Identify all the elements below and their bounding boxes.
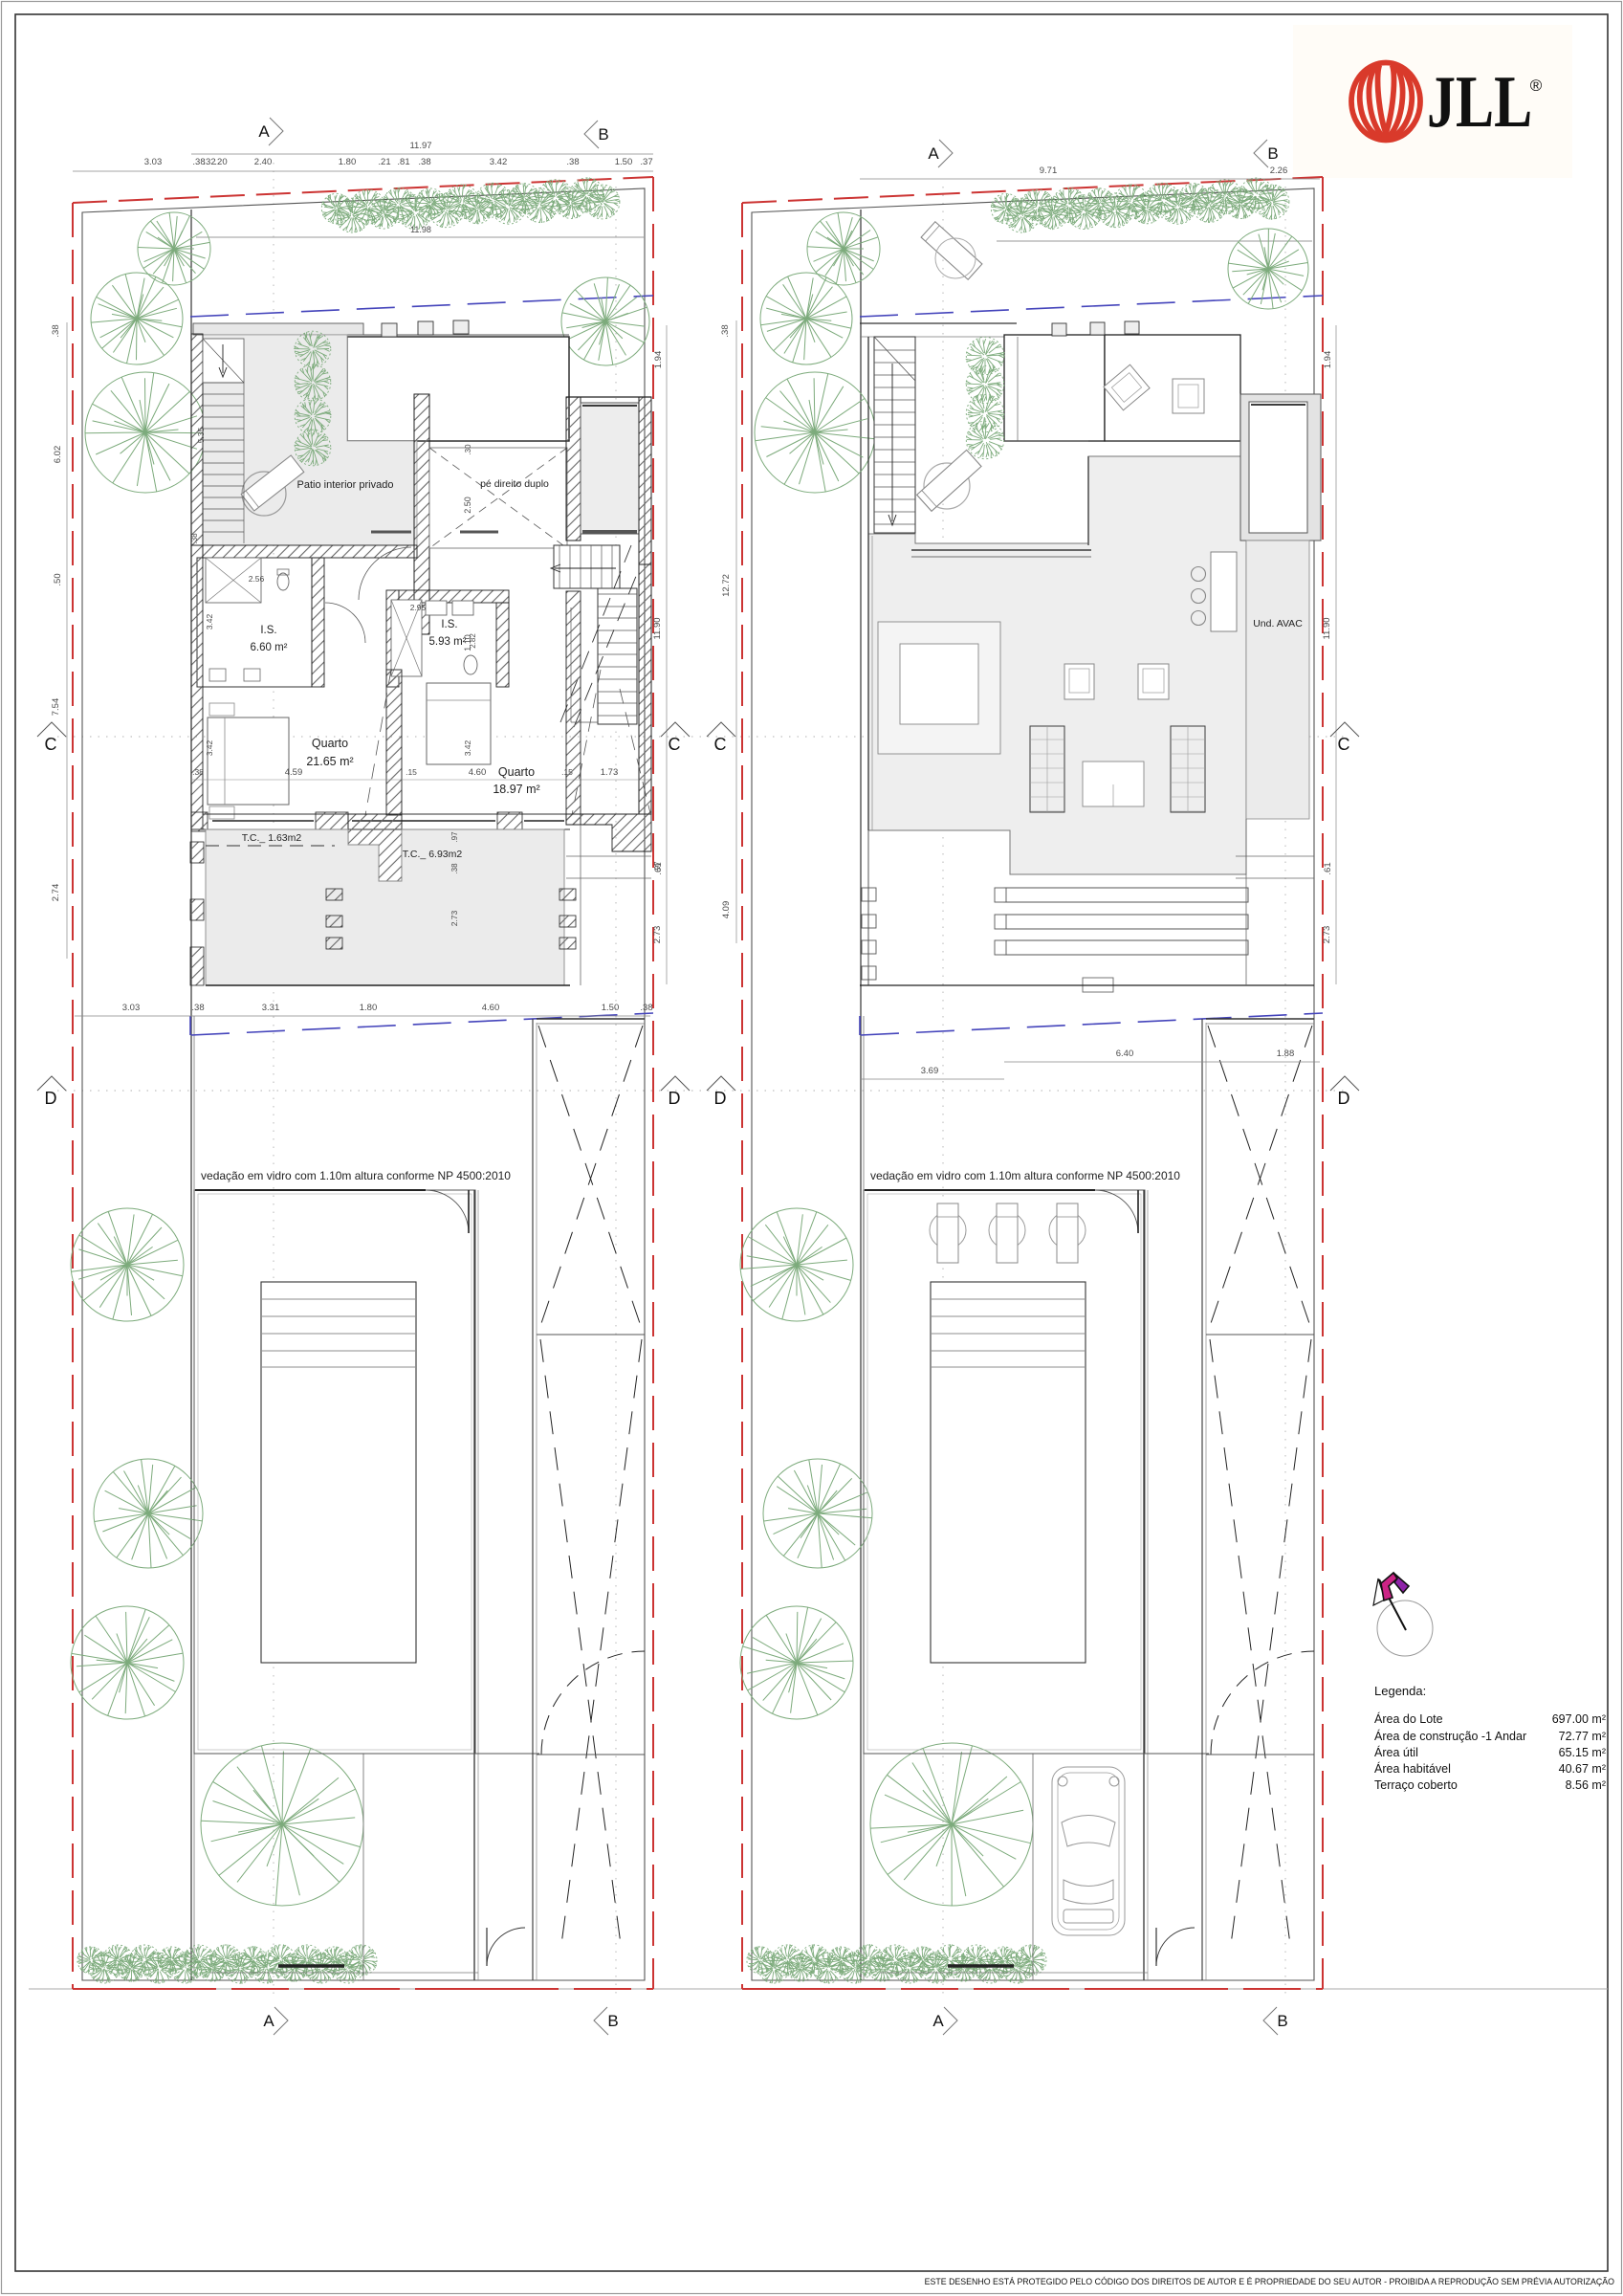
svg-text:.38: .38	[418, 157, 430, 167]
svg-text:11.90: 11.90	[652, 617, 663, 639]
svg-text:12.72: 12.72	[721, 574, 732, 597]
svg-text:Terraço coberto: Terraço coberto	[1374, 1778, 1458, 1792]
svg-text:A: A	[932, 2012, 944, 2030]
svg-text:40.67 m²: 40.67 m²	[1559, 1762, 1606, 1776]
svg-text:Área útil: Área útil	[1374, 1745, 1418, 1759]
svg-text:A: A	[258, 122, 270, 141]
svg-text:3.03: 3.03	[144, 157, 163, 167]
svg-text:.20: .20	[214, 157, 227, 167]
svg-text:4.60: 4.60	[482, 1003, 500, 1013]
svg-text:2.82: 2.82	[469, 633, 477, 649]
svg-text:D: D	[669, 1089, 681, 1108]
svg-text:1.88: 1.88	[1277, 1049, 1295, 1059]
svg-text:Und. AVAC: Und. AVAC	[1253, 618, 1303, 629]
svg-text:C: C	[1338, 735, 1350, 754]
svg-text:.97: .97	[653, 861, 662, 872]
svg-text:B: B	[607, 2012, 618, 2030]
svg-text:6.40: 6.40	[1116, 1049, 1134, 1059]
svg-text:Patio interior privado: Patio interior privado	[297, 479, 394, 491]
svg-text:1.50: 1.50	[615, 157, 633, 167]
svg-text:1.80: 1.80	[360, 1003, 378, 1013]
svg-text:C: C	[45, 735, 57, 754]
svg-text:697.00 m²: 697.00 m²	[1552, 1712, 1606, 1726]
svg-text:3.03: 3.03	[122, 1003, 141, 1013]
svg-text:.38: .38	[640, 1003, 652, 1013]
svg-text:4.59: 4.59	[285, 767, 303, 778]
svg-text:.30: .30	[464, 444, 472, 455]
svg-text:Área habitável: Área habitável	[1374, 1761, 1451, 1776]
svg-text:.50: .50	[53, 573, 63, 585]
svg-text:9.71: 9.71	[1040, 166, 1058, 176]
svg-text:2.40: 2.40	[254, 157, 273, 167]
svg-text:I.S.: I.S.	[260, 625, 276, 636]
svg-text:I.S.: I.S.	[441, 619, 457, 630]
svg-text:JLL: JLL	[1427, 60, 1532, 143]
svg-text:5.93 m²: 5.93 m²	[429, 636, 467, 648]
svg-text:A: A	[263, 2012, 274, 2030]
svg-text:Quarto: Quarto	[498, 765, 535, 779]
svg-text:21.65 m²: 21.65 m²	[306, 755, 353, 768]
svg-text:C: C	[714, 735, 727, 754]
svg-text:4.60: 4.60	[469, 767, 487, 778]
svg-text:8.56 m²: 8.56 m²	[1566, 1778, 1606, 1792]
svg-text:2.73: 2.73	[652, 926, 663, 944]
svg-text:18.97 m²: 18.97 m²	[493, 783, 539, 796]
svg-text:B: B	[1277, 2012, 1287, 2030]
svg-text:2.56: 2.56	[249, 574, 265, 584]
svg-text:.38: .38	[51, 324, 61, 337]
svg-text:1.73: 1.73	[601, 767, 619, 778]
svg-text:3.42: 3.42	[490, 157, 508, 167]
svg-text:B: B	[1267, 144, 1278, 163]
svg-text:D: D	[45, 1089, 57, 1108]
svg-text:T.C._ 6.93m2: T.C._ 6.93m2	[403, 849, 463, 860]
svg-text:1.94: 1.94	[1323, 351, 1333, 369]
svg-text:C: C	[669, 735, 681, 754]
svg-text:D: D	[714, 1089, 727, 1108]
svg-text:2.74: 2.74	[51, 884, 61, 902]
svg-text:11.90: 11.90	[1322, 617, 1332, 639]
svg-text:7.54: 7.54	[51, 698, 61, 717]
svg-text:.38: .38	[191, 1003, 204, 1013]
svg-text:3.42: 3.42	[205, 613, 214, 629]
svg-text:4.09: 4.09	[721, 901, 732, 919]
svg-text:.97: .97	[450, 831, 459, 843]
svg-text:.15: .15	[406, 767, 417, 777]
svg-text:2.26: 2.26	[1270, 166, 1288, 176]
svg-text:.38: .38	[192, 767, 204, 777]
svg-text:vedação em vidro com 1.10m alt: vedação em vidro com 1.10m altura confor…	[870, 1169, 1180, 1182]
svg-text:6.02: 6.02	[53, 446, 63, 464]
svg-text:3.31: 3.31	[262, 1003, 280, 1013]
svg-text:pé direito duplo: pé direito duplo	[480, 478, 549, 490]
svg-text:72.77 m²: 72.77 m²	[1559, 1730, 1606, 1743]
svg-text:2.50: 2.50	[463, 497, 472, 514]
svg-text:2.73: 2.73	[1322, 926, 1332, 944]
svg-text:.38: .38	[190, 533, 199, 544]
svg-text:.21: .21	[378, 157, 390, 167]
svg-text:3.69: 3.69	[921, 1066, 939, 1076]
svg-text:Área de construção -1 Andar: Área de construção -1 Andar	[1374, 1729, 1526, 1743]
svg-text:A: A	[928, 144, 939, 163]
svg-text:Área do Lote: Área do Lote	[1374, 1711, 1443, 1726]
svg-text:ESTE DESENHO ESTÁ PROTEGIDO PE: ESTE DESENHO ESTÁ PROTEGIDO PELO CÓDIGO …	[925, 2277, 1614, 2286]
svg-text:Legenda:: Legenda:	[1374, 1684, 1426, 1698]
svg-text:.38: .38	[566, 157, 579, 167]
svg-text:1.94: 1.94	[653, 351, 664, 369]
svg-text:.81: .81	[397, 157, 409, 167]
svg-text:1.50: 1.50	[602, 1003, 620, 1013]
svg-text:11.98: 11.98	[410, 225, 431, 234]
svg-text:65.15 m²: 65.15 m²	[1559, 1746, 1606, 1759]
svg-text:.38: .38	[720, 324, 731, 337]
svg-text:D: D	[1338, 1089, 1350, 1108]
svg-text:Quarto: Quarto	[312, 737, 348, 750]
svg-text:T.C._ 1.63m2: T.C._ 1.63m2	[242, 832, 302, 844]
svg-text:6.60 m²: 6.60 m²	[251, 642, 288, 653]
svg-text:2.95: 2.95	[410, 603, 427, 612]
svg-text:®: ®	[1530, 77, 1543, 95]
svg-text:2.73: 2.73	[450, 910, 459, 926]
svg-text:.37: .37	[640, 157, 652, 167]
svg-text:.38: .38	[450, 863, 459, 874]
svg-text:.61: .61	[1323, 862, 1333, 874]
svg-text:3.42: 3.42	[205, 740, 214, 756]
svg-text:B: B	[598, 125, 608, 143]
svg-text:3.42: 3.42	[463, 740, 472, 756]
svg-text:vedação em vidro com 1.10m alt: vedação em vidro com 1.10m altura confor…	[201, 1169, 511, 1182]
svg-text:11.97: 11.97	[409, 141, 431, 151]
svg-text:1.80: 1.80	[339, 157, 357, 167]
svg-text:5.35: 5.35	[196, 427, 206, 443]
